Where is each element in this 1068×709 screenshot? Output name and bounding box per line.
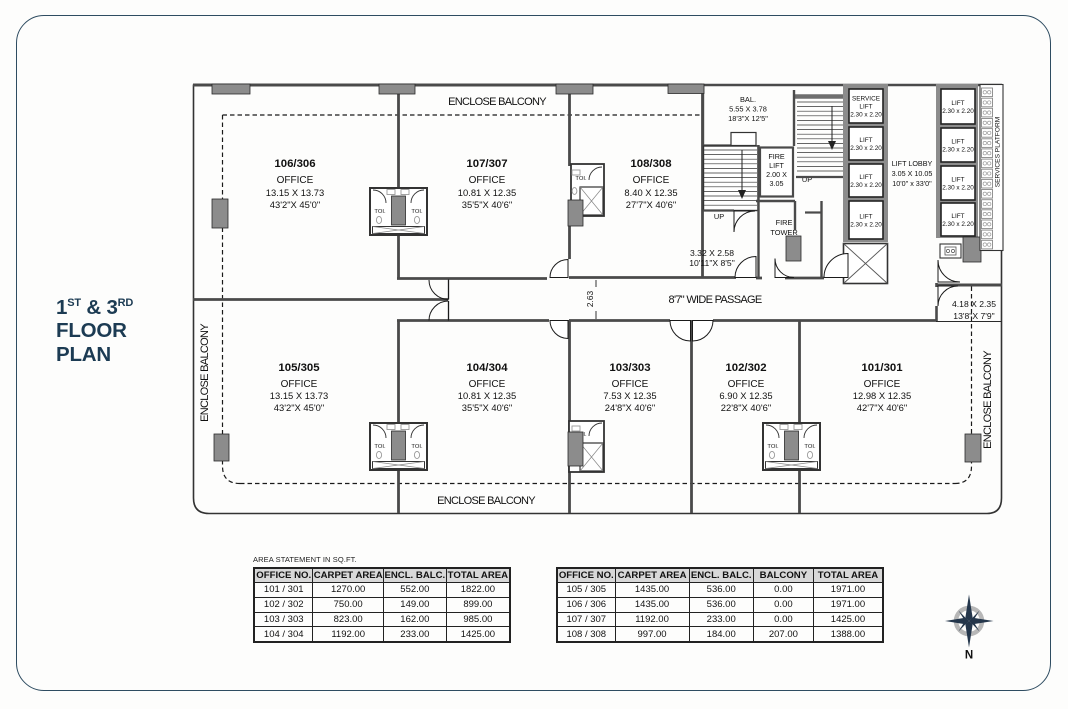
svg-text:SERVICE: SERVICE	[852, 96, 880, 103]
svg-text:OFFICE: OFFICE	[612, 379, 649, 390]
svg-text:2.30 x 2.20: 2.30 x 2.20	[850, 222, 882, 229]
svg-text:UP: UP	[714, 212, 724, 221]
svg-text:12.98 X 12.35: 12.98 X 12.35	[853, 390, 911, 401]
svg-text:FIRE: FIRE	[776, 218, 793, 227]
svg-text:4.18 X 2.35: 4.18 X 2.35	[952, 299, 996, 309]
svg-text:2.30 x 2.20: 2.30 x 2.20	[850, 182, 882, 189]
svg-text:OFFICE: OFFICE	[864, 379, 901, 390]
svg-text:OFFICE: OFFICE	[281, 379, 318, 390]
svg-text:103/303: 103/303	[609, 362, 650, 374]
svg-text:3.05: 3.05	[770, 179, 784, 188]
svg-text:OFFICE: OFFICE	[633, 175, 670, 186]
svg-text:18'3"X 12'5": 18'3"X 12'5"	[728, 114, 768, 123]
svg-text:LIFT: LIFT	[951, 100, 964, 107]
svg-text:TOI.: TOI.	[804, 444, 816, 450]
svg-text:OFFICE: OFFICE	[277, 175, 314, 186]
svg-text:ENCLOSE BALCONY: ENCLOSE BALCONY	[982, 350, 994, 449]
svg-text:LIFT: LIFT	[951, 213, 964, 220]
svg-text:27'7"X 40'6": 27'7"X 40'6"	[626, 199, 676, 210]
svg-text:ENCLOSE BALCONY: ENCLOSE BALCONY	[448, 96, 547, 108]
svg-text:BAL.: BAL.	[740, 95, 756, 104]
svg-text:3.32 X 2.58: 3.32 X 2.58	[690, 248, 734, 258]
svg-text:LIFT LOBBY: LIFT LOBBY	[892, 159, 933, 168]
svg-text:TOI.: TOI.	[374, 444, 386, 450]
svg-text:107/307: 107/307	[466, 158, 507, 170]
svg-text:LIFT: LIFT	[859, 104, 872, 111]
svg-text:35'5"X 40'6": 35'5"X 40'6"	[462, 199, 512, 210]
svg-text:2.63: 2.63	[585, 291, 595, 308]
svg-text:43'2"X 45'0": 43'2"X 45'0"	[270, 199, 320, 210]
svg-text:LIFT: LIFT	[859, 174, 872, 181]
svg-text:ENCLOSE BALCONY: ENCLOSE BALCONY	[437, 495, 536, 507]
svg-text:TOI.: TOI.	[411, 444, 423, 450]
svg-text:105/305: 105/305	[278, 362, 320, 374]
svg-text:6.90 X 12.35: 6.90 X 12.35	[719, 390, 772, 401]
svg-text:FIRE: FIRE	[768, 152, 785, 161]
svg-text:OFFICE: OFFICE	[469, 175, 506, 186]
svg-text:OFFICE: OFFICE	[469, 379, 506, 390]
svg-text:102/302: 102/302	[725, 362, 766, 374]
svg-text:LIFT: LIFT	[951, 139, 964, 146]
svg-text:42'7"X 40'6": 42'7"X 40'6"	[857, 402, 907, 413]
svg-text:2.30 x 2.20: 2.30 x 2.20	[942, 147, 974, 154]
svg-text:10.81 X 12.35: 10.81 X 12.35	[458, 390, 516, 401]
svg-text:7.53 X 12.35: 7.53 X 12.35	[603, 390, 656, 401]
svg-text:LIFT: LIFT	[859, 137, 872, 144]
svg-text:TOI.: TOI.	[411, 209, 423, 215]
svg-text:3.05 X 10.05: 3.05 X 10.05	[892, 169, 933, 178]
svg-text:108/308: 108/308	[630, 158, 671, 170]
svg-text:N: N	[965, 650, 973, 662]
svg-text:8.40 X 12.35: 8.40 X 12.35	[624, 187, 677, 198]
svg-text:8'7" WIDE PASSAGE: 8'7" WIDE PASSAGE	[669, 294, 762, 306]
svg-text:104/304: 104/304	[466, 362, 508, 374]
svg-text:24'8"X 40'6": 24'8"X 40'6"	[605, 402, 655, 413]
svg-text:10'0" x 33'0": 10'0" x 33'0"	[892, 179, 932, 188]
svg-text:2.30 x 2.20: 2.30 x 2.20	[942, 108, 974, 115]
svg-text:43'2"X 45'0": 43'2"X 45'0"	[274, 402, 324, 413]
svg-text:LIFT: LIFT	[769, 161, 784, 170]
svg-text:2.30 x 2.20: 2.30 x 2.20	[850, 112, 882, 119]
svg-text:LIFT: LIFT	[951, 177, 964, 184]
svg-text:2.30 x 2.20: 2.30 x 2.20	[850, 145, 882, 152]
svg-text:13.15 X 13.73: 13.15 X 13.73	[266, 187, 324, 198]
svg-text:ENCLOSE BALCONY: ENCLOSE BALCONY	[199, 323, 211, 422]
svg-text:101/301: 101/301	[861, 362, 903, 374]
svg-text:SERVICES PLATFORM: SERVICES PLATFORM	[995, 117, 1002, 187]
svg-text:106/306: 106/306	[274, 158, 315, 170]
svg-text:22'8"X 40'6": 22'8"X 40'6"	[721, 402, 771, 413]
svg-text:10'11"X 8'5": 10'11"X 8'5"	[689, 258, 735, 268]
svg-text:2.30 x 2.20: 2.30 x 2.20	[942, 221, 974, 228]
svg-text:2.30 x 2.20: 2.30 x 2.20	[942, 185, 974, 192]
svg-text:TOI.: TOI.	[374, 209, 386, 215]
svg-text:13.15 X 13.73: 13.15 X 13.73	[270, 390, 328, 401]
svg-text:13'8"X 7'9": 13'8"X 7'9"	[953, 311, 994, 321]
svg-text:TOI.: TOI.	[575, 176, 587, 182]
svg-text:2.00 X: 2.00 X	[766, 170, 787, 179]
svg-text:5.55 X 3.78: 5.55 X 3.78	[729, 105, 767, 114]
svg-text:TOI.: TOI.	[767, 444, 779, 450]
svg-text:10.81 X 12.35: 10.81 X 12.35	[458, 187, 516, 198]
svg-text:OFFICE: OFFICE	[728, 379, 765, 390]
svg-text:LIFT: LIFT	[859, 214, 872, 221]
svg-text:35'5"X 40'6": 35'5"X 40'6"	[462, 402, 512, 413]
